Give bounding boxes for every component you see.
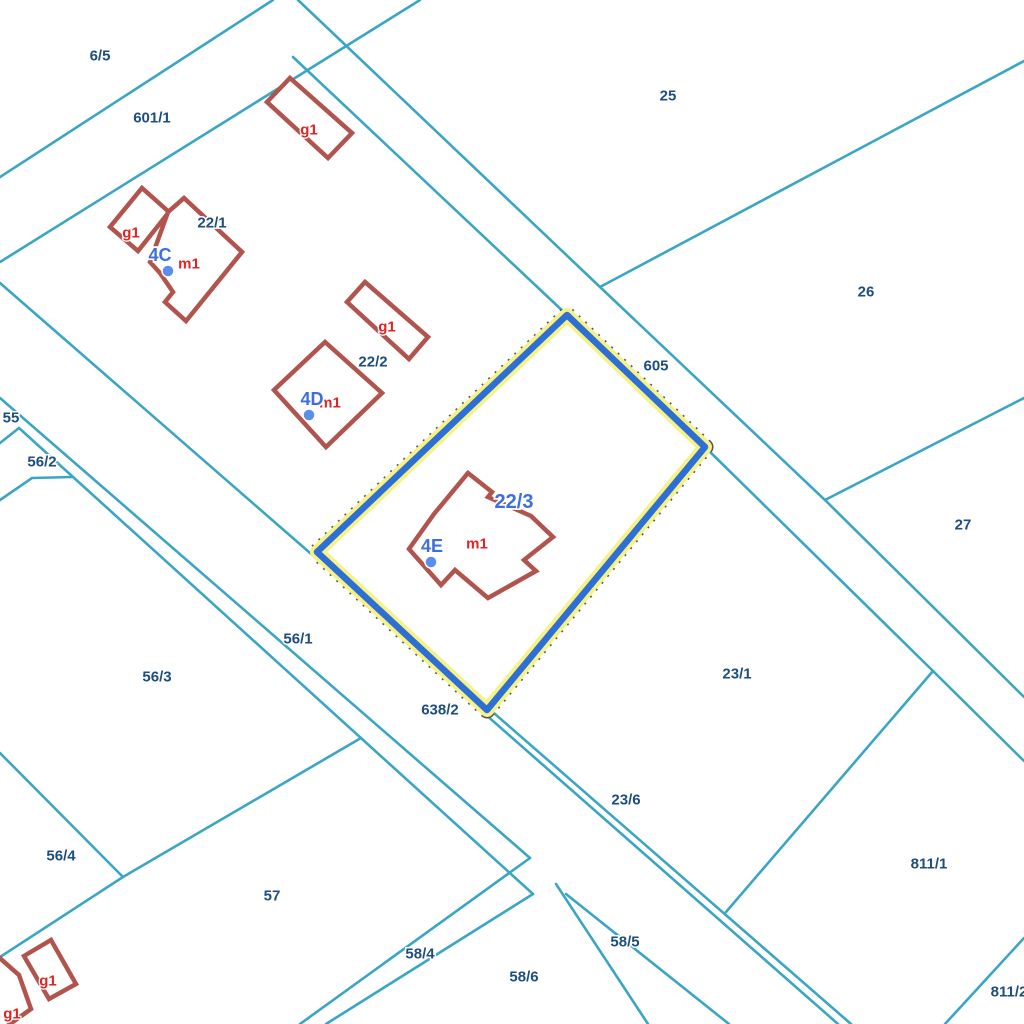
parcel-label-56-2-10: 56/2	[27, 454, 56, 471]
building-label-g1-23: g1	[300, 122, 318, 139]
parcel-label-56-4-13: 56/4	[46, 848, 76, 865]
parcel-label-23-6-17: 23/6	[611, 792, 640, 809]
boundary-line-t23	[726, 671, 933, 912]
building-label-m1-28: m1	[466, 536, 488, 553]
parcel-label-811-1-21: 811/1	[911, 856, 948, 873]
parcel-label-25-2: 25	[660, 88, 677, 105]
parcel-label-638-2-15: 638/2	[421, 702, 459, 719]
parcel-label-58-5-20: 58/5	[610, 934, 639, 951]
parcel-label-26-3: 26	[858, 284, 875, 301]
parcel-label-22-2-7: 22/2	[358, 354, 387, 371]
parcel-label-55-9: 55	[3, 410, 20, 427]
address-label-4C: 4C	[148, 245, 171, 265]
boundary-line-t26	[825, 398, 1024, 500]
building-label-g1-29: g1	[39, 973, 57, 990]
parcel-label-56-3-12: 56/3	[142, 669, 171, 686]
parcel-label-27-4: 27	[955, 517, 972, 534]
building-label-g1-30: g1	[3, 1006, 21, 1023]
parcel-label-58-4-18: 58/4	[405, 946, 435, 963]
parcel-label-601-1-1: 601/1	[133, 110, 171, 127]
boundary-line-t811	[945, 938, 1024, 1024]
cadastral-map[interactable]: 6/5601/125262760522/122/222/35556/256/15…	[0, 0, 1024, 1024]
boundary-line-b55	[0, 428, 19, 443]
parcel-label-811-2-22: 811/2	[991, 984, 1024, 1001]
parcel-label-6-5-0: 6/5	[90, 48, 111, 65]
building-label-g1-24: g1	[122, 225, 140, 242]
building-label-m1-25: m1	[178, 256, 200, 273]
building-outline-g1-top	[267, 78, 352, 158]
parcel-label-56-1-11: 56/1	[283, 631, 312, 648]
cadastral-map-canvas[interactable]: 6/5601/125262760522/122/222/35556/256/15…	[0, 0, 1024, 1024]
parcel-label-23-1-16: 23/1	[722, 666, 751, 683]
boundary-line-pocket562	[0, 477, 72, 500]
address-label-4D: 4D	[300, 389, 323, 409]
parcel-label-605-5: 605	[643, 358, 668, 375]
boundary-line-f1	[300, 858, 530, 1024]
boundary-line-f4	[566, 894, 729, 1024]
boundary-line-l1	[0, 0, 273, 177]
address-label-4E: 4E	[421, 536, 443, 556]
address-point-dot-4D[interactable]	[303, 409, 315, 421]
building-label-g1-26: g1	[378, 319, 396, 336]
boundary-line-f3	[556, 884, 648, 1024]
address-point-dot-4E[interactable]	[425, 556, 437, 568]
address-point-dot-4C[interactable]	[162, 265, 174, 277]
parcel-label-57-14: 57	[264, 888, 281, 905]
building-outline-g1-bottom-right	[24, 940, 76, 999]
parcel-label-22-1-6: 22/1	[197, 215, 226, 232]
parcel-label-58-6-19: 58/6	[509, 969, 538, 986]
parcel-label-22-3-8: 22/3	[495, 491, 534, 513]
